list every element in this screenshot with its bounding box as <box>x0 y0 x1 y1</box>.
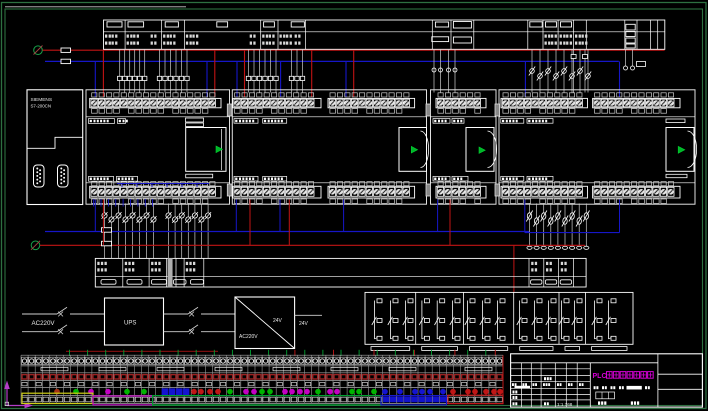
svg-text:SIEMENS: SIEMENS <box>31 97 53 103</box>
svg-text:PLC: PLC <box>593 373 607 380</box>
svg-text:S7-200CN: S7-200CN <box>31 104 52 109</box>
svg-text:AC220V: AC220V <box>32 320 56 327</box>
svg-text:1:1.768: 1:1.768 <box>557 402 573 407</box>
svg-text:24V: 24V <box>299 321 309 327</box>
svg-text:AC220V: AC220V <box>239 334 258 340</box>
svg-text:24V: 24V <box>273 318 283 324</box>
svg-text:UPS: UPS <box>124 321 136 327</box>
